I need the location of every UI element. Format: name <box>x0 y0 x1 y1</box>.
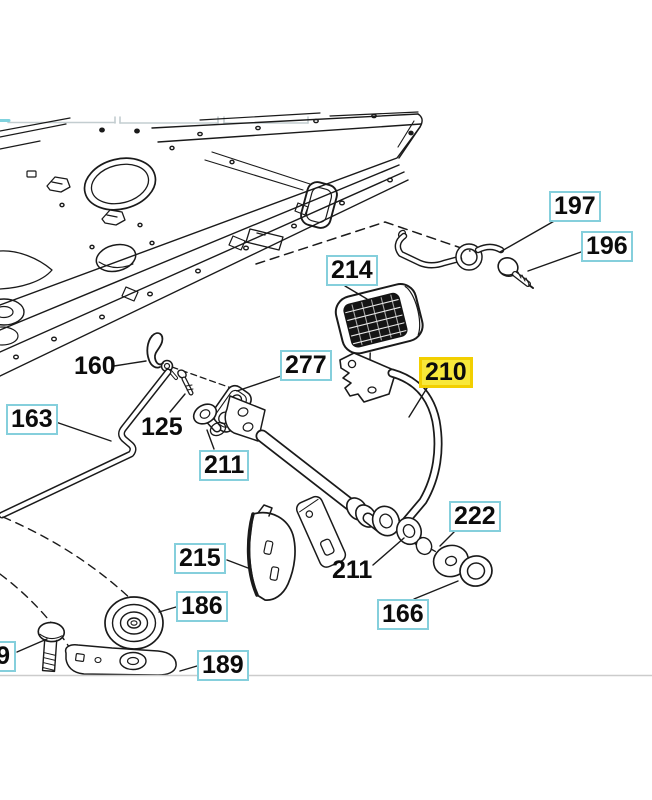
parts-diagram-canvas: 197 196 214 210 277 160 163 125 211 215 … <box>0 0 652 800</box>
callout-196[interactable]: 196 <box>581 231 633 262</box>
callout-160: 160 <box>74 352 116 380</box>
callout-partial-left-edge[interactable]: 9 <box>0 641 16 672</box>
part-196-bolt <box>495 255 533 288</box>
part-160-clip <box>147 333 176 378</box>
exploded-parts-drawing <box>0 0 652 800</box>
callout-125: 125 <box>141 413 183 441</box>
callout-211-lower: 211 <box>332 556 372 584</box>
part-197-rod <box>397 229 501 267</box>
callout-197[interactable]: 197 <box>549 191 601 222</box>
bolt-lower-left <box>36 622 65 672</box>
callout-210-selected[interactable]: 210 <box>419 357 473 388</box>
part-215-guard <box>249 505 295 600</box>
part-189-bracket <box>66 645 176 675</box>
callout-186[interactable]: 186 <box>176 591 228 622</box>
callout-166[interactable]: 166 <box>377 599 429 630</box>
callout-163[interactable]: 163 <box>6 404 58 435</box>
callout-211-upper[interactable]: 211 <box>199 450 249 481</box>
callout-277[interactable]: 277 <box>280 350 332 381</box>
callout-222[interactable]: 222 <box>449 501 501 532</box>
part-125-bolt <box>176 368 193 393</box>
callout-214[interactable]: 214 <box>326 255 378 286</box>
part-163-rod <box>2 372 168 515</box>
callout-215[interactable]: 215 <box>174 543 226 574</box>
callout-189[interactable]: 189 <box>197 650 249 681</box>
